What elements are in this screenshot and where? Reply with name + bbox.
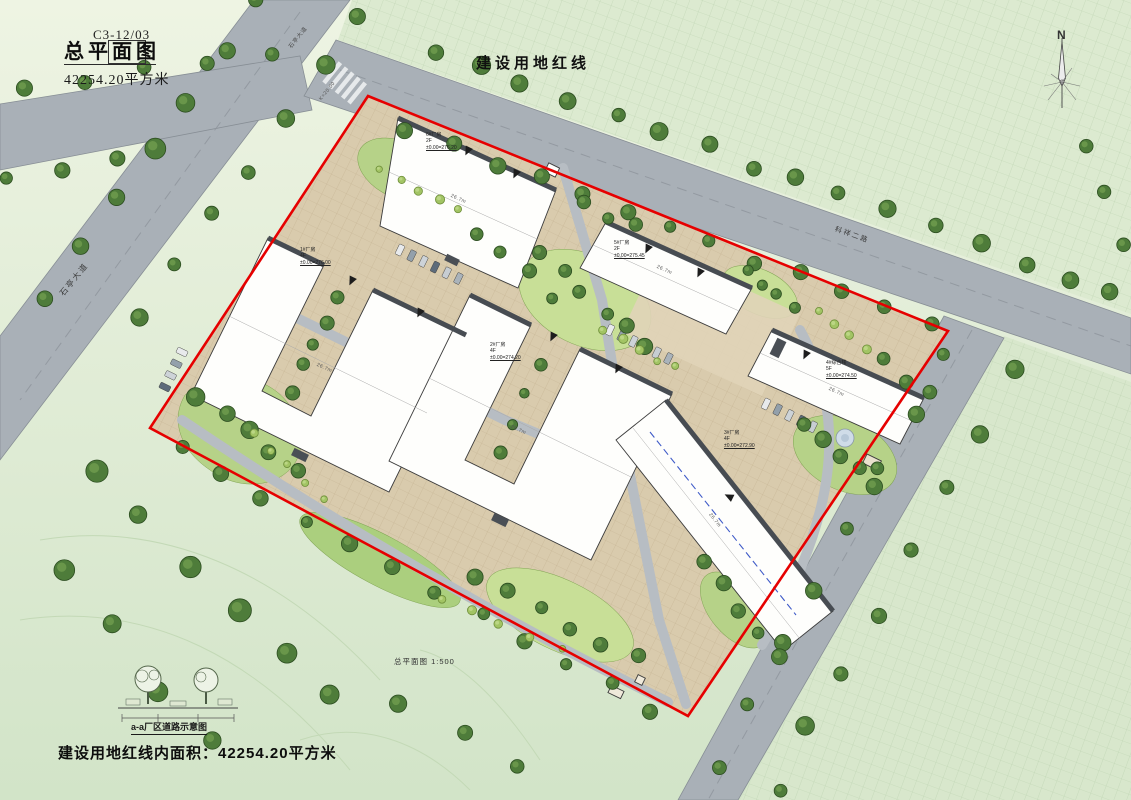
bottom-area-note: 建设用地红线内面积：42254.20平方米 — [58, 745, 337, 764]
building-label-5: 5#厂房 2F ±0.00=275.45 — [614, 240, 670, 259]
site-plan-canvas: C3-12/03 总平面图 42254.20平方米 建设用地红线 N 建设用地红… — [0, 0, 1131, 800]
building-label-4: 4#综合楼 5F ±0.00=274.50 — [826, 360, 882, 379]
building-3-elevation: ±0.00=272.90 — [724, 443, 780, 449]
building-label-6: 6#厂房 2F ±0.00=276.20 — [426, 132, 482, 151]
building-6-elevation: ±0.00=276.20 — [426, 145, 482, 151]
site-area-text: 42254.20平方米 — [64, 72, 170, 90]
red-line-label: 建设用地红线 — [476, 55, 590, 74]
building-1-elevation: ±0.00=276.00 — [300, 260, 356, 266]
plan-scale-note: 总平面图 1:500 — [394, 657, 455, 666]
drawing-title: 总平面图 — [64, 40, 160, 65]
building-2-elevation: ±0.00=274.20 — [490, 355, 546, 361]
building-label-2: 2#厂房 4F ±0.00=274.20 — [490, 342, 546, 361]
building-5-elevation: ±0.00=275.45 — [614, 253, 670, 259]
legend-caption: a-a厂区道路示意图 — [131, 722, 207, 735]
north-label: N — [1057, 28, 1066, 43]
title-underline — [64, 64, 156, 65]
building-4-elevation: ±0.00=274.50 — [826, 373, 882, 379]
building-label-3: 3#厂房 4F ±0.00=272.90 — [724, 430, 780, 449]
building-label-1: 1#厂房 4F ±0.00=276.00 — [300, 247, 356, 266]
round-water-feature-center — [841, 434, 849, 442]
site-plan-drawing — [0, 0, 1131, 800]
